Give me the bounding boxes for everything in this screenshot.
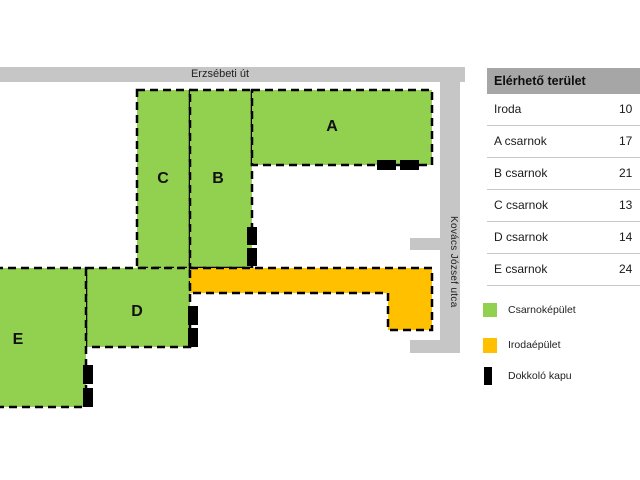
row-label: A csarnok xyxy=(494,126,547,157)
legend-label: Csarnoképület xyxy=(508,304,576,316)
row-label: D csarnok xyxy=(494,222,548,253)
legend-label: Dokkoló kapu xyxy=(508,370,572,382)
row-value: 10 xyxy=(619,94,632,125)
row-value: 13 xyxy=(619,190,632,221)
dock-gate-a2 xyxy=(400,160,419,170)
dock-gate-e2 xyxy=(83,388,93,407)
dock-gate-e1 xyxy=(83,365,93,384)
row-label: B csarnok xyxy=(494,158,547,189)
table-row: E csarnok 24 xyxy=(487,254,640,286)
road-label-erzsebeti: Erzsébeti út xyxy=(120,66,320,82)
row-label: E csarnok xyxy=(494,254,547,285)
site-plan-figure: Erzsébeti út Kovács József utca A B C D … xyxy=(0,0,640,480)
row-value: 24 xyxy=(619,254,632,285)
legend-item-office: Irodaépület xyxy=(483,336,561,354)
road-stub-upper xyxy=(410,238,440,250)
road-label-kovacs-jozsef: Kovács József utca xyxy=(441,166,459,358)
office-swatch-icon xyxy=(483,338,497,353)
dock-gate-a1 xyxy=(377,160,396,170)
legend-item-dock: Dokkoló kapu xyxy=(483,367,572,385)
hall-swatch-icon xyxy=(483,303,497,317)
table-row: Iroda 10 xyxy=(487,94,640,126)
area-table: Elérhető terület Iroda 10 A csarnok 17 B… xyxy=(487,68,640,286)
row-value: 14 xyxy=(619,222,632,253)
legend-item-hall: Csarnoképület xyxy=(483,301,576,319)
row-label: C csarnok xyxy=(494,190,548,221)
area-table-header: Elérhető terület xyxy=(487,68,640,94)
building-label-e: E xyxy=(13,331,24,349)
building-label-c: C xyxy=(157,170,169,188)
dock-gate-b1 xyxy=(247,227,257,245)
building-label-d: D xyxy=(131,303,143,321)
row-value: 21 xyxy=(619,158,632,189)
table-row: A csarnok 17 xyxy=(487,126,640,158)
row-value: 17 xyxy=(619,126,632,157)
dock-gate-d2 xyxy=(188,328,198,347)
dock-gate-b2 xyxy=(247,248,257,266)
row-label: Iroda xyxy=(494,94,521,125)
office-building xyxy=(190,268,432,330)
dock-gate-d1 xyxy=(188,306,198,325)
legend-label: Irodaépület xyxy=(508,339,561,351)
table-row: B csarnok 21 xyxy=(487,158,640,190)
building-label-a: A xyxy=(326,118,338,136)
dock-swatch-icon xyxy=(483,367,492,385)
building-a xyxy=(252,90,432,165)
building-label-b: B xyxy=(212,170,224,188)
table-row: D csarnok 14 xyxy=(487,222,640,254)
table-row: C csarnok 13 xyxy=(487,190,640,222)
